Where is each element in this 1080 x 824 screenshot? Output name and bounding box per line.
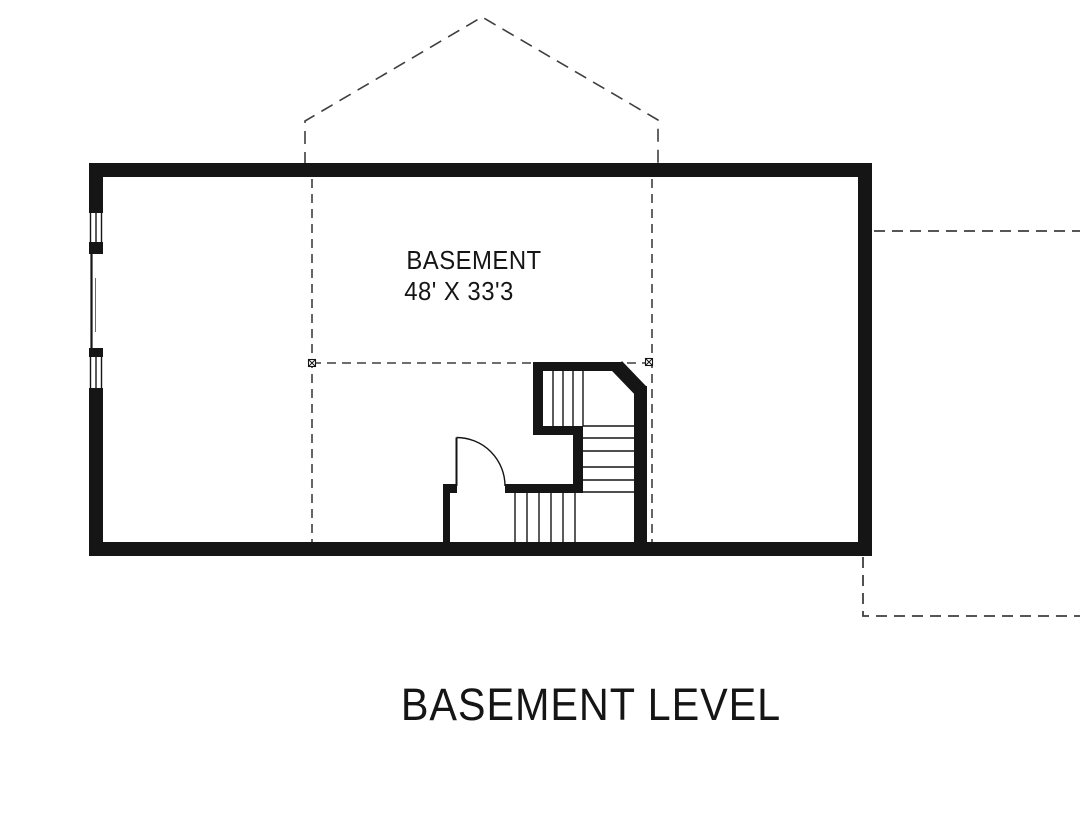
door-arc <box>457 438 506 487</box>
stair-wall-right <box>634 386 647 542</box>
roof-outline-dashed <box>305 17 658 165</box>
door-swing <box>457 438 506 487</box>
stair-wall-top <box>533 362 622 371</box>
roof-gable-dashed-line <box>305 17 658 165</box>
post-marker-left <box>309 360 316 367</box>
post-marker-right <box>646 359 653 366</box>
floor-plan: BASEMENT 48' X 33'3 BASEMENT LEVEL <box>0 0 1080 824</box>
stair-enclosure-walls <box>443 362 647 545</box>
exterior-walls <box>89 163 872 556</box>
stair-wall-left <box>533 362 543 435</box>
deck-outline-dashed <box>863 231 1080 616</box>
stair-wall-under-stair <box>443 484 457 545</box>
window-left-upper <box>88 213 104 242</box>
window-left-lower <box>88 357 104 388</box>
stair-wall-middle <box>573 426 583 493</box>
room-dimensions: 48' X 33'3 <box>404 276 514 307</box>
foundation-wall-outline <box>89 163 872 556</box>
plan-title: BASEMENT LEVEL <box>401 679 781 731</box>
room-label: BASEMENT <box>406 245 541 276</box>
left-wall-windows <box>88 213 104 388</box>
thin-wall-section <box>88 254 104 348</box>
stair-wall-door-level <box>505 484 583 493</box>
deck-dashed-line-lower <box>863 557 1080 616</box>
stair-wall-chamfer <box>617 366 642 392</box>
interior-bearing-lines-dashed <box>309 179 653 542</box>
